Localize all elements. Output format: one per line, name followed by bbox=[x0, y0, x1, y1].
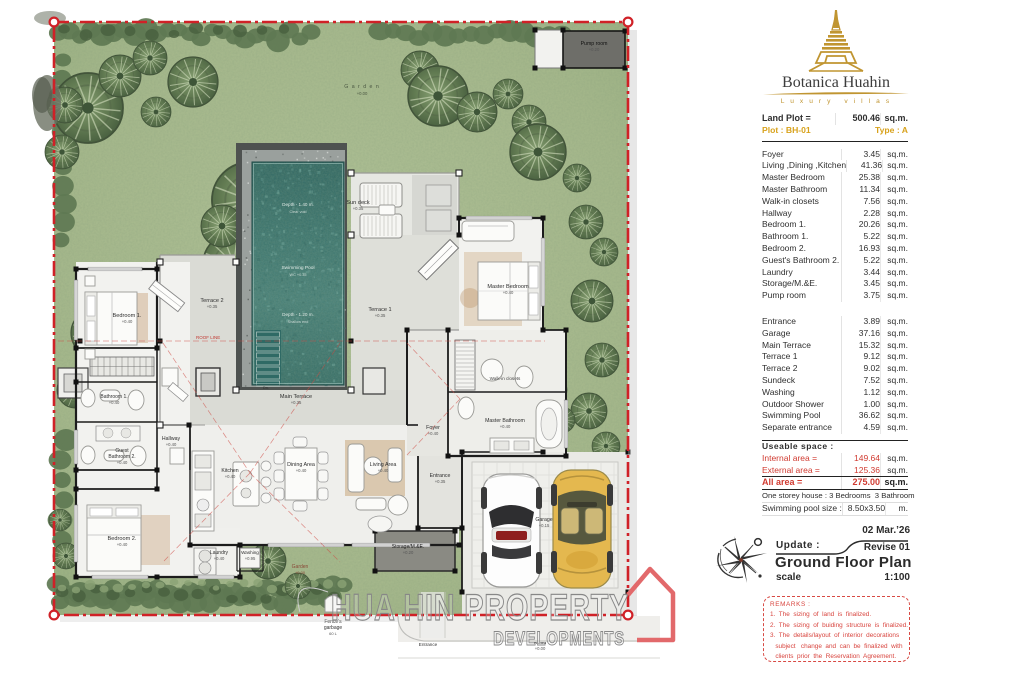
svg-text:+0.95: +0.95 bbox=[245, 556, 256, 561]
svg-text:+0.20: +0.20 bbox=[589, 47, 600, 52]
svg-text:+0.00: +0.00 bbox=[295, 570, 306, 575]
svg-text:+0.20: +0.20 bbox=[403, 550, 414, 555]
svg-text:Depth - 1.20 m.: Depth - 1.20 m. bbox=[282, 312, 314, 317]
svg-text:+0.40: +0.40 bbox=[122, 319, 133, 324]
svg-text:ROOF LINE: ROOF LINE bbox=[196, 335, 220, 340]
svg-text:Washing: Washing bbox=[241, 550, 259, 555]
svg-text:+0.35: +0.35 bbox=[291, 400, 302, 405]
svg-text:Shallow end: Shallow end bbox=[288, 320, 309, 324]
svg-text:60 L: 60 L bbox=[329, 631, 338, 636]
svg-text:+0.35: +0.35 bbox=[353, 206, 364, 211]
svg-text:+0.00: +0.00 bbox=[357, 91, 368, 96]
svg-text:+0.40: +0.40 bbox=[428, 431, 439, 436]
svg-text:+0.35: +0.35 bbox=[435, 479, 446, 484]
svg-text:+0.40: +0.40 bbox=[296, 468, 307, 473]
svg-text:+0.40: +0.40 bbox=[117, 460, 128, 465]
svg-text:+0.40: +0.40 bbox=[503, 290, 514, 295]
svg-text:G a r d e n: G a r d e n bbox=[344, 84, 380, 90]
svg-text:+0.35: +0.35 bbox=[207, 304, 218, 309]
svg-text:+0.40: +0.40 bbox=[166, 442, 177, 447]
svg-text:+0.40: +0.40 bbox=[117, 542, 128, 547]
svg-text:+0.40: +0.40 bbox=[225, 474, 236, 479]
svg-text:+0.40: +0.40 bbox=[214, 556, 225, 561]
svg-text:+0.35: +0.35 bbox=[375, 313, 386, 318]
svg-text:Walk-in closets: Walk-in closets bbox=[490, 376, 521, 381]
svg-text:Swimming Pool: Swimming Pool bbox=[281, 265, 314, 271]
svg-text:+0.40: +0.40 bbox=[378, 468, 389, 473]
svg-text:DEVELOPMENTS: DEVELOPMENTS bbox=[493, 627, 625, 650]
svg-text:Depth - 1.40 m.: Depth - 1.40 m. bbox=[282, 202, 314, 207]
svg-text:WC +0.35: WC +0.35 bbox=[290, 273, 307, 277]
svg-text:Dn.: Dn. bbox=[263, 386, 269, 390]
svg-text:Clear void: Clear void bbox=[289, 210, 306, 214]
svg-text:+0.40: +0.40 bbox=[109, 400, 120, 405]
svg-text:+0.15: +0.15 bbox=[539, 523, 550, 528]
svg-text:+0.40: +0.40 bbox=[500, 424, 511, 429]
svg-text:HUA HIN PROPERTY: HUA HIN PROPERTY bbox=[331, 588, 629, 629]
svg-text:Entrance: Entrance bbox=[419, 642, 438, 647]
